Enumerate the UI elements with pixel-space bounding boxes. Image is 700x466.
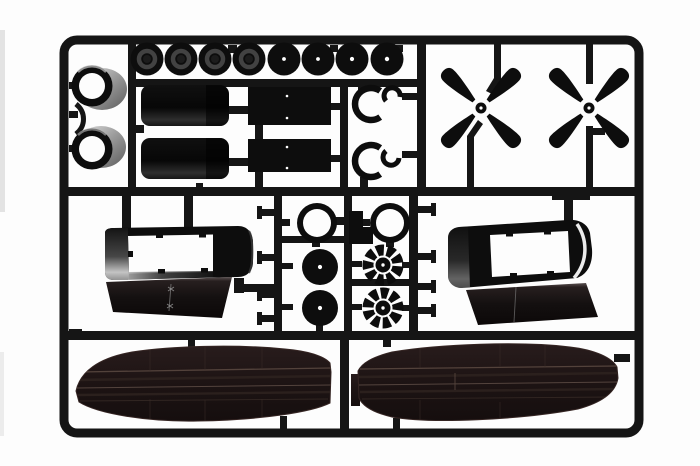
- nacelle-end-shade: [448, 227, 470, 289]
- photo-stage: [0, 0, 700, 466]
- prop-hub-pin: [587, 106, 590, 109]
- cylinder-end-cap: [206, 85, 229, 126]
- wheel-part: [336, 43, 369, 76]
- wheel-part: [165, 43, 198, 76]
- cowl-ring-hole: [79, 136, 105, 162]
- cylinder-part: [141, 138, 229, 179]
- nacelle-open-edge-shade: [105, 228, 129, 280]
- pin-mark: [385, 57, 389, 61]
- wing-surface: [76, 346, 331, 421]
- flat-panel: [248, 139, 331, 172]
- wheel-part: [131, 43, 164, 76]
- pin-mark: [350, 57, 354, 61]
- prop-hub-pin: [479, 106, 482, 109]
- wheel-part: [233, 43, 266, 76]
- nacelle-flap: [106, 277, 232, 318]
- pin-mark: [318, 306, 322, 310]
- pin-mark: [381, 306, 384, 309]
- wheel-disc-part: [302, 249, 338, 285]
- centre-cowl-ring-part: [370, 203, 410, 243]
- pin-mark: [316, 57, 320, 61]
- centre-cowl-ring-part: [297, 203, 337, 243]
- ring-hole: [303, 209, 331, 237]
- wheel-part: [268, 43, 301, 76]
- hub-hole: [177, 55, 185, 63]
- ring-hole: [376, 209, 404, 237]
- wheel-part: [302, 43, 335, 76]
- wheel-part: [371, 43, 404, 76]
- hub-hole: [211, 55, 219, 63]
- cylinder-end-cap: [206, 138, 229, 179]
- pin-mark: [381, 263, 384, 266]
- flat-panel: [248, 87, 331, 125]
- wing-part-left: [76, 346, 331, 421]
- pin-mark: [282, 57, 286, 61]
- hub-hole: [245, 55, 253, 63]
- wheel-part: [199, 43, 232, 76]
- sprue-photo: [0, 0, 700, 466]
- hub-hole: [143, 55, 151, 63]
- cylinder-part: [141, 85, 229, 126]
- cowl-ring-hole: [79, 73, 105, 99]
- wheel-disc-part: [302, 290, 338, 326]
- pin-mark: [318, 265, 322, 269]
